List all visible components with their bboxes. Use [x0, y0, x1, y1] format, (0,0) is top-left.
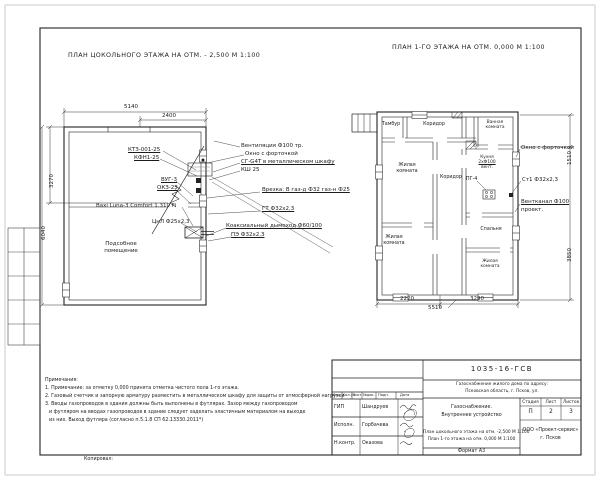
room-label-bathroom-w2: комната [485, 125, 504, 130]
titleblock-stage-label: Стадия [520, 400, 541, 405]
room-label-living-3: Жилая комната [378, 235, 410, 247]
titleblock-sheet-label: Лист [541, 400, 561, 405]
titleblock-object-2: Псковская область, г. Псков, ул. [423, 389, 581, 394]
dim-basement-top-sub: 2400 [162, 113, 176, 120]
titleblock-col-list: Лист [353, 393, 362, 397]
plan-title-floor1: ПЛАН 1-ГО ЭТАЖА НА ОТМ. 0,000 М 1:100 [392, 44, 545, 52]
titleblock-format: Формат А3 [423, 449, 520, 455]
room-label-bedroom: Спальня [477, 227, 505, 233]
callout-coax-flue: Коаксиальный дымоход Ф60/100 [226, 223, 322, 230]
titleblock-sheets-value: 3 [561, 409, 581, 416]
titleblock-stage-value: П [520, 409, 541, 416]
signature-scribbles [400, 405, 416, 445]
label-ktz-valve: КТЗ-001-25 [128, 147, 160, 154]
dim-f1-right-2: 3850 [567, 248, 574, 262]
footer-kopiroval: Копировал: [84, 457, 113, 463]
room-label-basement: Подсобное помещение [100, 241, 142, 254]
titleblock-row3-name: Оказова [362, 441, 383, 447]
titleblock-company-1: ООО «Проект-сервис» [520, 428, 581, 434]
room-label-kitchen: Кухня 2хФ100 вент. [473, 155, 501, 170]
floor1-windows [376, 112, 520, 302]
room-label-living-2: Жилая комната [474, 259, 506, 269]
room-label-bathroom: Ванная комната [479, 120, 511, 130]
notes-line-2: 2. Газовый счетчик и запорную арматуру р… [45, 394, 345, 400]
titleblock-row1-name: Шандруев [362, 405, 388, 411]
drawing-sheet: ПЛАН ЦОКОЛЬНОГО ЭТАЖА НА ОТМ. - 2,500 М … [0, 0, 600, 480]
vent-shaft-hatch [452, 112, 476, 149]
dim-basement-left-sub: 3270 [49, 174, 56, 188]
titleblock-object-1: Газоснабжение жилого дома по адресу: [423, 382, 581, 387]
room-label-living-2-w2: комната [480, 264, 499, 269]
room-label-living-1-w1: Жилая [398, 163, 415, 168]
dim-f1-bottom-total: 5510 [428, 305, 442, 312]
floor1-dims [375, 113, 574, 308]
notes-line-1: 1. Примечание: за отметку 0,000 принята … [45, 386, 239, 392]
gas-stove-symbol [483, 190, 513, 199]
label-pipe-cnl: ЦнЛ Ф25х2,3 [152, 219, 190, 226]
notes-line-4: и футляром на вводах газопроводов в здан… [49, 410, 305, 416]
callout-f1-vent-2: проект. [521, 207, 543, 214]
room-label-basement-w1: Подсобное [105, 241, 136, 247]
titleblock-content-2: План 1-го этажа на отм. 0,000 М 1:100 [423, 437, 520, 442]
titleblock-sheet-value: 2 [541, 409, 561, 416]
dim-f1-bottom-1: 2220 [400, 296, 414, 303]
room-label-living-3-w1: Жилая [385, 235, 402, 240]
callout-pe-pipe: ПЭ Ф32х2,3 [231, 232, 264, 239]
room-label-corridor-mid: Коридор [440, 175, 462, 181]
callout-f1-window: Окно с форточкой [521, 145, 574, 152]
titleblock-content-1: План цокольного этажа на отм. -2,500 М 1… [423, 430, 520, 435]
room-label-living-1: Жилая комната [391, 163, 423, 175]
titleblock-col-izm: Изм. [333, 393, 341, 397]
notes-title: Примечания: [45, 378, 78, 384]
callout-vent: Вентиляция Ф100 тр. [241, 143, 303, 150]
room-label-tambur: Тамбур [379, 122, 403, 128]
notes-line-3: 3. Вводы газопроводов в здания должны бы… [45, 402, 298, 408]
titleblock-col-ndok: №док. [363, 393, 375, 397]
callout-gt-pipe: ГТ Ф32х2,3 [262, 206, 294, 213]
titleblock-row3-role: Н.контр. [334, 441, 355, 447]
titleblock-doc-number: 1035-16-ГСВ [423, 365, 581, 373]
titleblock-section-1: Газоснабжение. [423, 405, 520, 411]
room-label-basement-w2: помещение [104, 248, 138, 254]
dim-f1-right-1: 1510 [567, 151, 574, 165]
titleblock-col-data: Дата [400, 393, 409, 397]
label-kfn-filter: КФН1-25 [134, 155, 159, 162]
callout-tie-in: Врезка: В газ-д Ф32 газ-н Ф25 [262, 187, 350, 194]
titleblock-row2-role: Исполн. [334, 423, 354, 429]
dim-basement-left-total: 6040 [41, 226, 48, 240]
titleblock-row2-name: Горбачева [362, 423, 388, 429]
label-boiler: Baxi Luna-3 Comfort 1.310 Fi [96, 203, 176, 210]
titleblock-row1-role: ГИП [334, 405, 344, 411]
titleblock-sheets-label: Листов [561, 400, 581, 405]
callout-gas-meter: СГ-G4Т в металлическом шкафу [241, 159, 335, 166]
notes-line-5: из них. Выход футляра (согласно п.5.1.8 … [49, 418, 203, 424]
room-label-corridor-top: Коридор [420, 122, 448, 128]
callout-window: Окно с форточкой [245, 151, 298, 158]
titleblock-col-podp: Подп. [378, 393, 389, 397]
room-label-living-1-w2: комната [396, 169, 417, 174]
margin-stamp-grid [8, 228, 40, 345]
dim-basement-top-total: 5140 [124, 104, 138, 111]
label-gas-stove: ПГ-4 [466, 177, 477, 183]
room-label-kitchen-l3: вент. [481, 165, 493, 170]
plan-title-basement: ПЛАН ЦОКОЛЬНОГО ЭТАЖА НА ОТМ. - 2,500 М … [68, 52, 260, 60]
label-okz: ОКЗ-25 [157, 185, 178, 192]
room-label-living-3-w2: комната [383, 241, 404, 246]
callout-f1-vent: Вентканал Ф100 [521, 199, 569, 206]
callout-f1-riser: Ст1 Ф32х2,3 [522, 177, 558, 184]
label-vug: ВУГ-3 [161, 177, 177, 184]
titleblock-section-2: Внутреннее устройство [423, 413, 520, 419]
titleblock-company-2: г. Псков [520, 436, 581, 442]
callout-ball-valve: КШ 25 [241, 167, 260, 174]
dim-f1-bottom-2: 3290 [470, 296, 484, 303]
